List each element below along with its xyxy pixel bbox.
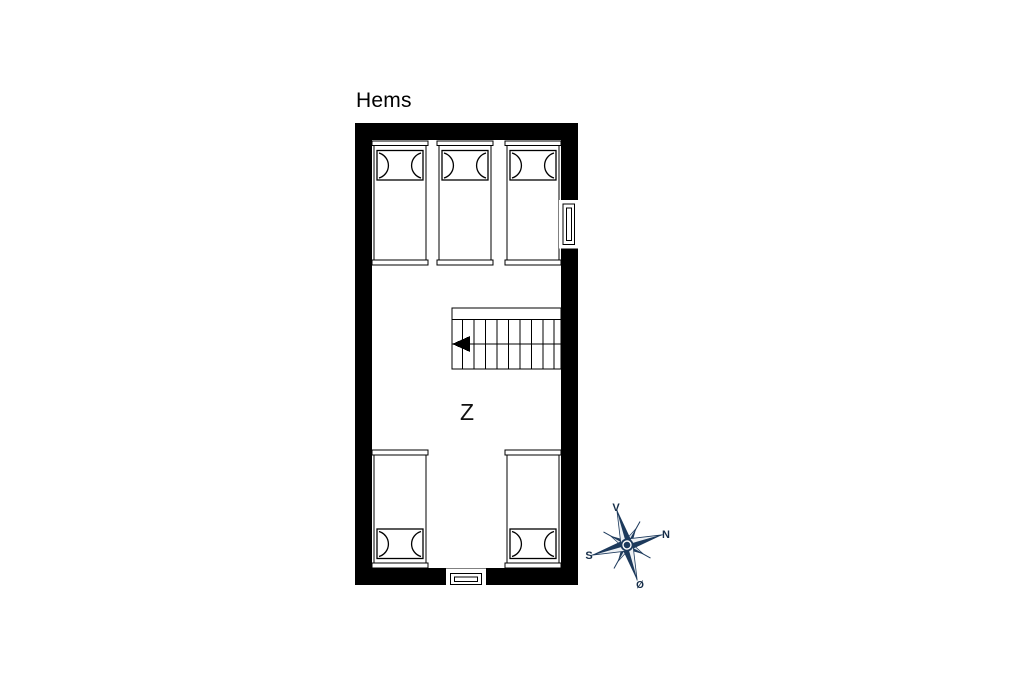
floor-plan: Z (0, 0, 1024, 682)
pillow (510, 529, 556, 559)
room-label: Z (460, 399, 474, 425)
bed-bottom-1 (372, 450, 428, 568)
pillow (510, 151, 556, 181)
pillow (377, 529, 423, 559)
bed-top-2 (437, 141, 493, 265)
bed-top-1 (372, 141, 428, 265)
staircase (452, 308, 561, 369)
south-wall-window (446, 569, 486, 589)
compass-label-west: V (612, 502, 620, 514)
east-wall-window (559, 200, 579, 249)
compass-rose-icon: V N S Ø (581, 499, 673, 591)
pillow (442, 151, 488, 181)
compass-label-north: N (662, 529, 670, 541)
bed-top-3 (505, 141, 561, 265)
compass-label-east: Ø (636, 580, 644, 591)
page-background: Hems (0, 0, 1024, 682)
bed-bottom-2 (505, 450, 561, 568)
compass-label-south: S (585, 550, 592, 562)
pillow (377, 151, 423, 181)
